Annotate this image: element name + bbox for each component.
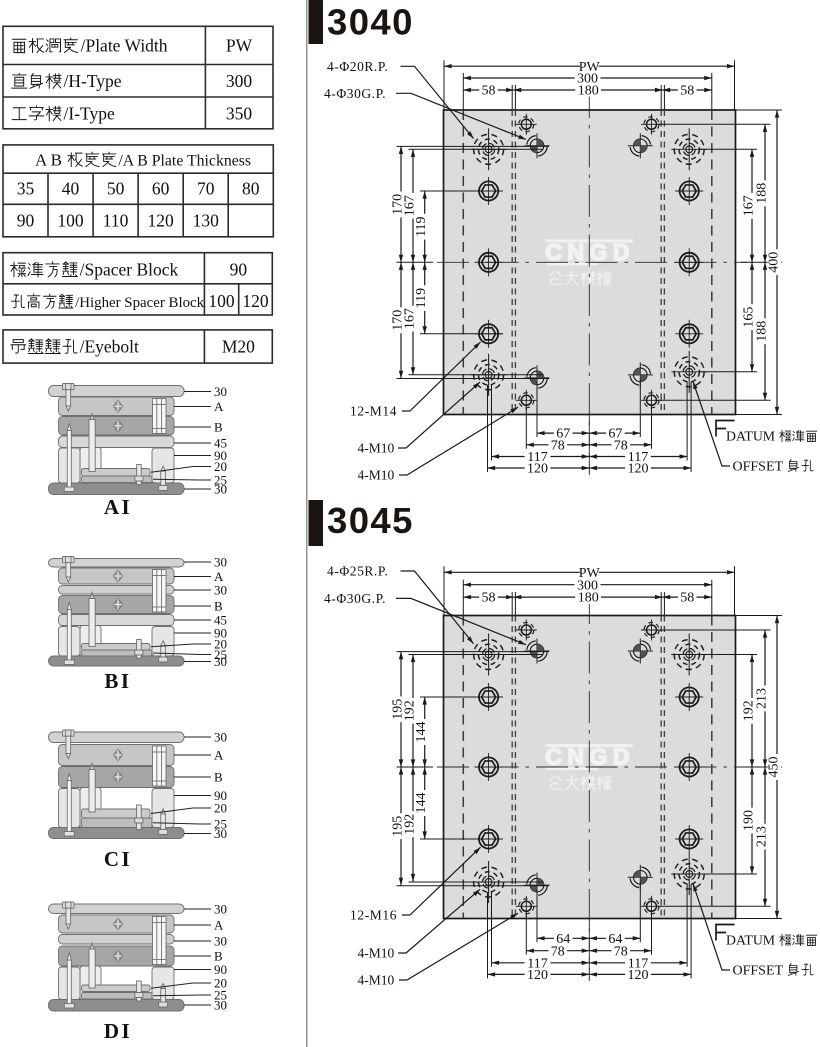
svg-text:A: A: [214, 747, 224, 762]
svg-text:58: 58: [482, 591, 496, 606]
svg-text:78: 78: [551, 438, 565, 453]
svg-text:144: 144: [414, 722, 429, 743]
svg-text:4-M10: 4-M10: [358, 468, 395, 483]
svg-text:120: 120: [242, 291, 269, 311]
svg-text:30: 30: [214, 384, 227, 399]
svg-text:20: 20: [214, 800, 227, 815]
svg-text:DI: DI: [104, 1019, 132, 1043]
svg-text:50: 50: [107, 179, 125, 199]
svg-text:A: A: [214, 917, 224, 932]
svg-text:/Spacer Block: /Spacer Block: [80, 260, 179, 280]
svg-text:AI: AI: [104, 495, 132, 519]
svg-text:400: 400: [767, 252, 782, 273]
svg-text:192: 192: [403, 700, 418, 721]
svg-text:DATUM: DATUM: [726, 429, 775, 444]
svg-text:A B: A B: [35, 151, 62, 170]
svg-text:213: 213: [755, 688, 770, 709]
svg-text:78: 78: [551, 944, 565, 959]
svg-text:4-Φ25R.P.: 4-Φ25R.P.: [327, 564, 388, 579]
svg-text:192: 192: [403, 814, 418, 835]
svg-text:3040: 3040: [327, 2, 414, 43]
svg-text:90: 90: [230, 260, 248, 280]
svg-text:30: 30: [214, 826, 227, 841]
svg-text:M20: M20: [222, 337, 255, 357]
svg-text:BI: BI: [104, 669, 131, 693]
svg-text:130: 130: [193, 211, 220, 231]
svg-text:120: 120: [628, 968, 649, 983]
svg-text:35: 35: [17, 179, 35, 199]
svg-text:CI: CI: [104, 847, 132, 871]
svg-text:4-Φ20R.P.: 4-Φ20R.P.: [327, 59, 388, 74]
svg-text:/Plate Width: /Plate Width: [81, 36, 168, 56]
svg-text:A: A: [214, 399, 224, 414]
svg-text:CNGD: CNGD: [545, 239, 635, 265]
svg-text:144: 144: [414, 793, 429, 814]
svg-text:4-M10: 4-M10: [358, 441, 395, 456]
svg-text:30: 30: [214, 901, 227, 916]
svg-text:4-Φ30G.P.: 4-Φ30G.P.: [324, 86, 386, 101]
svg-text:120: 120: [628, 462, 649, 477]
svg-text:30: 30: [214, 729, 227, 744]
svg-text:188: 188: [755, 183, 770, 204]
svg-text:3045: 3045: [327, 500, 414, 541]
svg-text:B: B: [214, 769, 223, 784]
svg-text:30: 30: [214, 582, 227, 597]
svg-text:/A B Plate Thickness: /A B Plate Thickness: [118, 153, 251, 170]
svg-text:30: 30: [214, 654, 227, 669]
svg-text:450: 450: [767, 757, 782, 778]
svg-text:119: 119: [414, 216, 429, 236]
svg-text:30: 30: [214, 554, 227, 569]
svg-text:B: B: [214, 598, 223, 613]
svg-text:120: 120: [527, 462, 548, 477]
svg-text:30: 30: [214, 481, 227, 496]
svg-text:12-M14: 12-M14: [350, 404, 397, 419]
svg-text:4-Φ30G.P.: 4-Φ30G.P.: [324, 591, 386, 606]
svg-text:100: 100: [208, 291, 235, 311]
svg-text:167: 167: [403, 308, 418, 329]
svg-text:B: B: [214, 419, 223, 434]
svg-text:/Eyebolt: /Eyebolt: [80, 337, 139, 357]
svg-text:110: 110: [103, 211, 129, 231]
svg-text:100: 100: [57, 211, 84, 231]
svg-text:70: 70: [197, 179, 215, 199]
svg-text:60: 60: [152, 179, 170, 199]
svg-text:80: 80: [242, 179, 260, 199]
svg-text:120: 120: [527, 968, 548, 983]
svg-text:90: 90: [17, 211, 35, 231]
svg-text:300: 300: [226, 71, 253, 91]
svg-text:119: 119: [414, 288, 429, 308]
svg-text:30: 30: [214, 933, 227, 948]
svg-text:/Higher Spacer Block: /Higher Spacer Block: [75, 295, 205, 311]
svg-text:4-M10: 4-M10: [358, 973, 395, 988]
svg-text:CNGD: CNGD: [545, 744, 635, 770]
svg-text:/I-Type: /I-Type: [64, 104, 115, 124]
svg-text:58: 58: [680, 591, 694, 606]
svg-text:350: 350: [226, 104, 253, 124]
svg-text:120: 120: [147, 211, 174, 231]
svg-text:OFFSET: OFFSET: [733, 460, 784, 475]
svg-text:30: 30: [214, 997, 227, 1012]
svg-text:167: 167: [403, 195, 418, 216]
svg-text:/H-Type: /H-Type: [64, 71, 122, 91]
svg-text:DATUM: DATUM: [726, 933, 775, 948]
svg-text:180: 180: [578, 591, 599, 606]
svg-text:58: 58: [680, 84, 694, 99]
svg-text:188: 188: [755, 321, 770, 342]
svg-text:180: 180: [578, 84, 599, 99]
svg-text:OFFSET: OFFSET: [733, 964, 784, 979]
svg-text:40: 40: [62, 179, 80, 199]
svg-text:12-M16: 12-M16: [350, 908, 397, 923]
svg-text:58: 58: [482, 84, 496, 99]
svg-text:PW: PW: [226, 36, 253, 56]
svg-text:4-M10: 4-M10: [358, 946, 395, 961]
svg-text:213: 213: [755, 826, 770, 847]
